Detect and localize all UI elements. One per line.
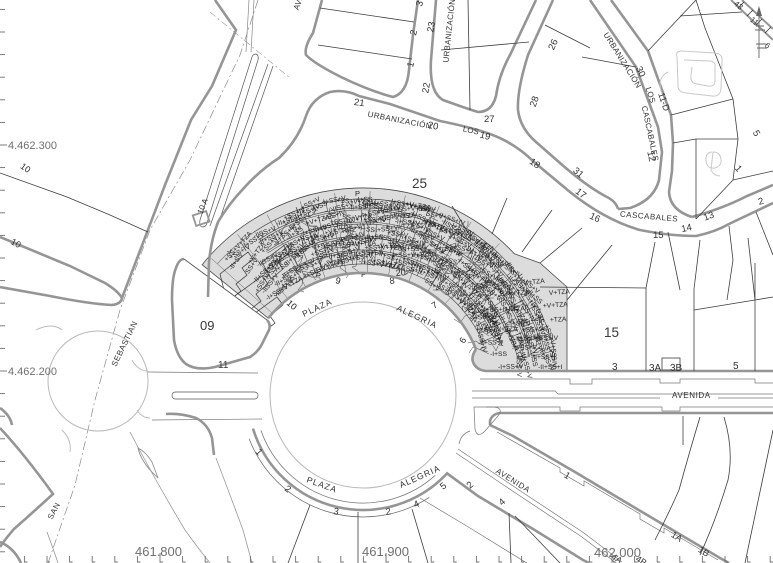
svg-text:22: 22 [420, 82, 433, 94]
svg-text:462.000: 462.000 [594, 545, 641, 560]
svg-text:15: 15 [653, 230, 664, 241]
svg-text:+TZA: +TZA [550, 316, 567, 324]
svg-text:14: 14 [680, 222, 693, 235]
svg-text:12: 12 [644, 150, 657, 163]
svg-text:09: 09 [200, 318, 214, 333]
svg-text:-I+SS: -I+SS [490, 351, 507, 358]
svg-text:27: 27 [484, 114, 495, 125]
svg-text:+SS+IV: +SS+IV [535, 335, 559, 342]
svg-text:P: P [355, 189, 360, 198]
svg-text:20: 20 [427, 120, 440, 133]
svg-text:461.900: 461.900 [362, 544, 409, 559]
svg-text:15: 15 [604, 325, 619, 340]
svg-text:-II+SS+I: -II+SS+I [531, 354, 556, 361]
svg-text:V+TZA: V+TZA [549, 289, 571, 297]
svg-text:21: 21 [353, 97, 365, 109]
svg-text:-II+SS: -II+SS [478, 339, 498, 347]
svg-text:5: 5 [733, 361, 739, 372]
svg-text:11: 11 [218, 360, 229, 371]
svg-text:23: 23 [425, 21, 438, 33]
svg-text:3: 3 [612, 362, 618, 373]
svg-text:4.462.300: 4.462.300 [8, 140, 57, 152]
svg-text:20: 20 [395, 267, 406, 278]
svg-text:3A: 3A [649, 363, 662, 374]
svg-text:461.800: 461.800 [135, 544, 182, 559]
svg-text:AVENIDA: AVENIDA [672, 391, 711, 400]
svg-text:25: 25 [412, 176, 427, 191]
svg-text:-II+SS: -II+SS [362, 201, 383, 210]
svg-text:+SS+V: +SS+V [522, 326, 544, 334]
svg-text:P: P [361, 270, 366, 279]
svg-text:4.462.200: 4.462.200 [8, 366, 57, 378]
svg-text:3B: 3B [670, 363, 683, 374]
svg-text:-I+SS+V: -I+SS+V [512, 344, 538, 352]
